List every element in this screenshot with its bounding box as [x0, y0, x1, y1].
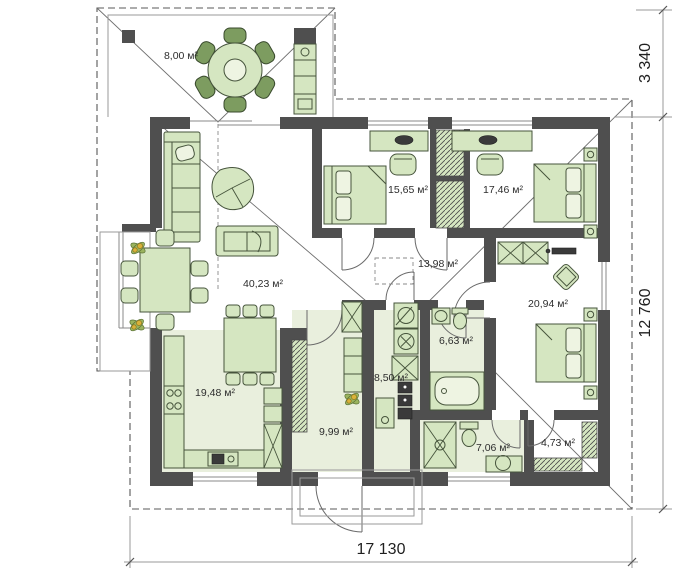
boiler-icon: [398, 382, 412, 419]
bed: [324, 166, 386, 224]
bedroom2-window: [452, 121, 532, 125]
bathroom2-window: [448, 477, 510, 481]
nightstand: [584, 225, 597, 238]
nightstand: [584, 308, 597, 321]
bedroom1-door: [342, 238, 374, 270]
corner-sofa: [164, 132, 200, 242]
room-label-living: 40,23 м²: [243, 278, 283, 290]
bed: [534, 164, 596, 222]
plant-icon: [128, 317, 145, 333]
terrace: [108, 15, 333, 117]
room-label-bathroom: 6,63 м²: [439, 335, 474, 347]
kitchen-cabinet: [264, 388, 282, 404]
washbasin-icon: [486, 456, 522, 473]
utility-door: [386, 272, 414, 300]
terrace-sliding-door: [190, 121, 280, 125]
floor-plan-drawing: 8,00 м² 15,65 м² 17,46 м² 40,23 м² 13,98…: [0, 0, 700, 575]
fridge-icon: [264, 424, 282, 468]
entrance-porch: [292, 470, 422, 524]
dimension-overall-width: 17 130: [357, 541, 406, 558]
desk-chair: [390, 154, 416, 175]
room-label-bedroom2: 17,46 м²: [483, 184, 523, 196]
room-label-kitchen: 19,48 м²: [195, 387, 235, 399]
room-label-bedroom3: 20,94 м²: [528, 298, 568, 310]
bedroom1-furniture: [324, 131, 428, 224]
wardrobe-icon: [292, 340, 307, 432]
dryer-icon: [394, 329, 418, 354]
terrace-column: [122, 30, 135, 43]
shower-icon: [424, 422, 456, 468]
dimension-terrace-depth: 3 340: [637, 43, 654, 83]
kitchen-window: [193, 477, 257, 481]
room-label-hallway: 9,99 м²: [319, 426, 354, 438]
washbasin-icon: [432, 308, 450, 324]
room-label-terrace: 8,00 м²: [164, 50, 199, 62]
room-label-corridor: 13,98 м²: [418, 258, 458, 270]
bed: [536, 324, 596, 382]
kitchen-island-set: [224, 305, 276, 385]
nightstand: [584, 148, 597, 161]
nightstand: [584, 386, 597, 399]
coat-closet: [344, 338, 362, 392]
bedroom3-furniture: [498, 242, 597, 399]
utility-cabinet: [376, 398, 394, 428]
desk-chair: [477, 154, 503, 175]
terrace-dining-set: [193, 28, 277, 112]
washing-machine-icon: [394, 303, 418, 328]
cabinet-icon: [342, 302, 362, 332]
outdoor-kitchen: [294, 44, 316, 114]
floor-plan-canvas: 8,00 м² 15,65 м² 17,46 м² 40,23 м² 13,98…: [0, 0, 700, 575]
tv-icon: [546, 248, 576, 254]
toilet-icon: [452, 308, 468, 329]
room-label-utility: 8,50 м²: [374, 372, 409, 384]
armchair: [212, 168, 254, 210]
kitchen-counter-left: [164, 336, 184, 468]
bathtub-icon: [430, 372, 484, 410]
room-label-wardrobe: 4,73 м²: [541, 437, 576, 449]
room-label-bathroom2: 7,06 м²: [476, 442, 511, 454]
bedroom2-furniture: [452, 131, 597, 238]
bedroom1-window: [368, 121, 428, 125]
kitchen-cabinet: [264, 406, 282, 422]
terrace-column-2: [294, 28, 316, 44]
dimension-overall-depth: 12 760: [637, 288, 654, 337]
loveseat: [216, 226, 278, 256]
room-label-bedroom1: 15,65 м²: [388, 184, 428, 196]
armchair: [552, 263, 580, 291]
bedroom3-window: [602, 262, 606, 310]
wardrobe-icon: [498, 242, 548, 264]
